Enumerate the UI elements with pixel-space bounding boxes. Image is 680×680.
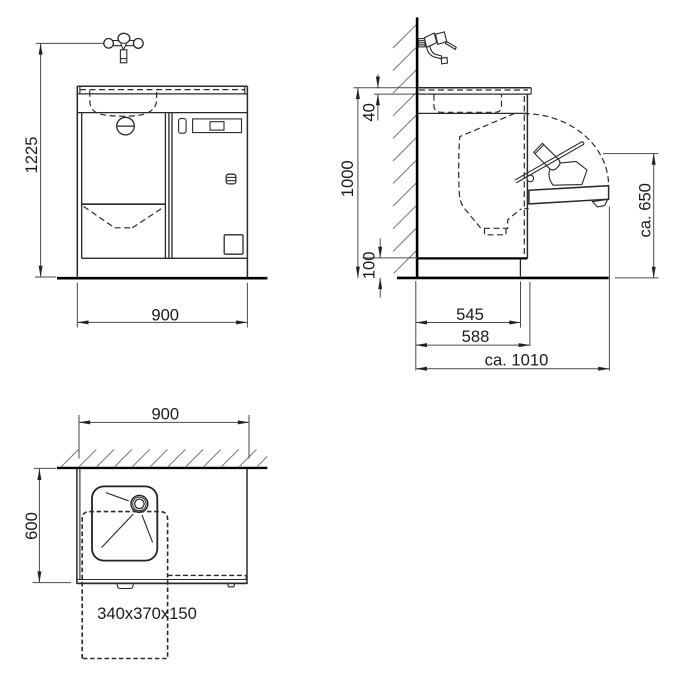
- svg-text:340x370x150: 340x370x150: [97, 604, 197, 623]
- svg-text:588: 588: [462, 327, 490, 346]
- svg-text:ca. 650: ca. 650: [635, 183, 654, 237]
- svg-text:1000: 1000: [338, 160, 357, 197]
- svg-text:900: 900: [151, 305, 179, 324]
- svg-text:545: 545: [456, 305, 484, 324]
- svg-text:100: 100: [359, 252, 378, 280]
- svg-text:1225: 1225: [22, 137, 41, 174]
- svg-text:40: 40: [360, 103, 379, 121]
- svg-text:900: 900: [151, 405, 179, 424]
- svg-text:ca. 1010: ca. 1010: [485, 350, 549, 369]
- svg-text:600: 600: [22, 512, 41, 540]
